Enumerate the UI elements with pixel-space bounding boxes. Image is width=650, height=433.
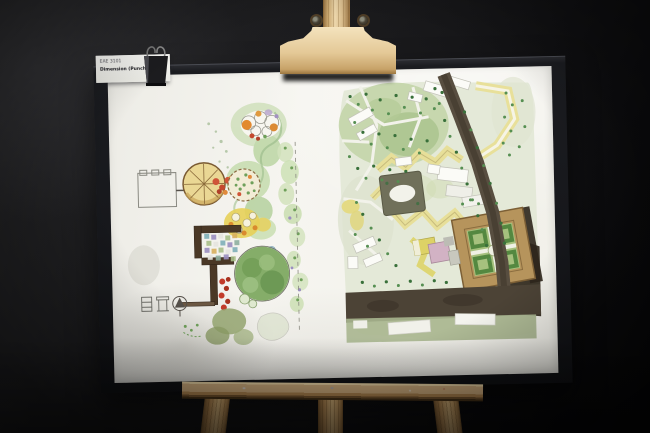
- drawing-board: [93, 56, 572, 394]
- legend-symbols: [142, 297, 169, 312]
- speckled-tree-canopy: [228, 169, 261, 202]
- artwork-svg: [108, 66, 559, 383]
- site-plan-drawing: [335, 72, 545, 343]
- round-tree-canopy: [183, 162, 226, 205]
- garden-plan-drawing: [124, 102, 309, 348]
- plaza-with-oval: [379, 171, 426, 216]
- red-flower-column: [218, 277, 231, 311]
- binder-clip: [140, 40, 172, 87]
- bottom-road: [345, 284, 541, 342]
- paper-shadow-wash: [127, 245, 160, 286]
- olive-ground-washes: [183, 307, 289, 346]
- large-tree-canopy: [234, 246, 290, 302]
- easel-tray: [182, 382, 483, 402]
- easel-leg-left: [200, 395, 230, 433]
- clamp-screw-right: [359, 16, 368, 25]
- watercolor-paper: [108, 66, 559, 383]
- easel-leg-center: [318, 398, 343, 433]
- clamp-screw-left: [312, 16, 321, 25]
- photo-scene: EAE 3101 Dimension (Punch) 09: [0, 0, 650, 433]
